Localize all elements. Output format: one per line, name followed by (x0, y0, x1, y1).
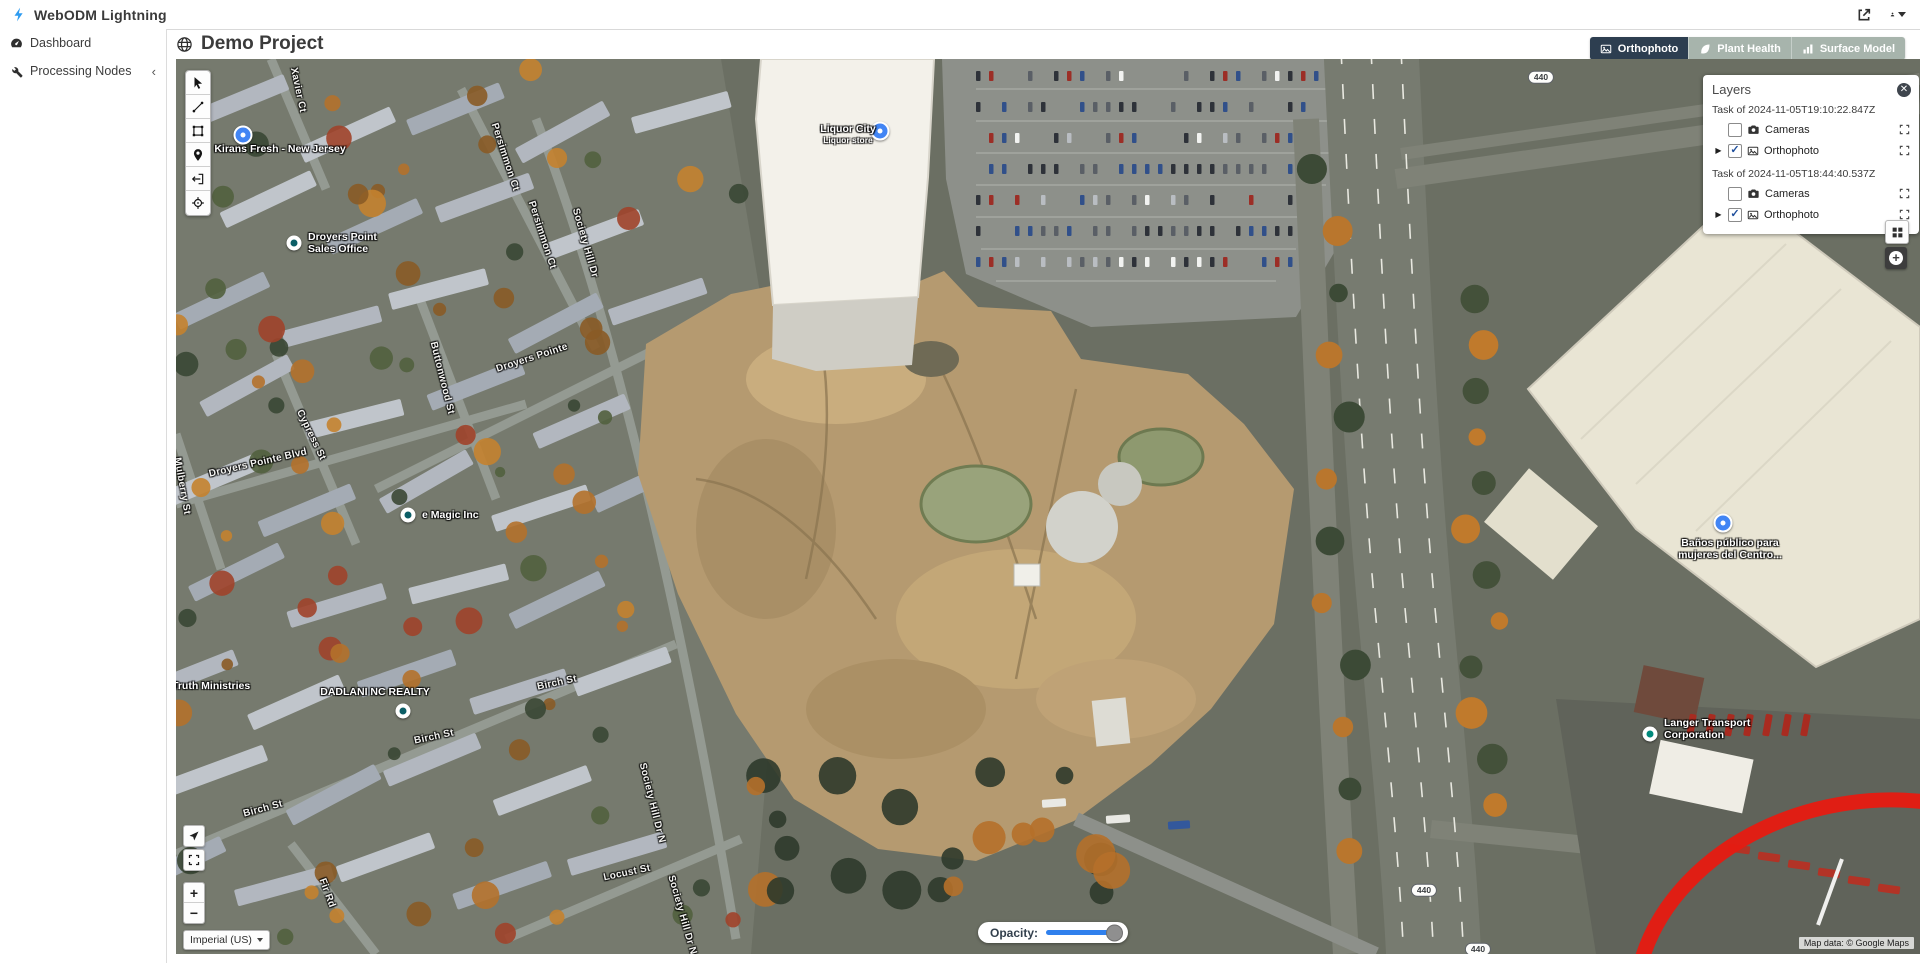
zoom-control: + − (183, 882, 205, 924)
opacity-label: Opacity: (990, 926, 1038, 940)
sidebar-item-label: Dashboard (30, 36, 91, 50)
zoom-in-button[interactable]: + (184, 883, 204, 903)
wrench-icon (10, 65, 23, 78)
top-navbar: WebODM Lightning (0, 0, 1920, 30)
tool-recenter-button[interactable] (186, 191, 210, 215)
export-icon (191, 172, 205, 186)
layers-panel-title: Layers (1712, 82, 1910, 97)
layer-row-orthophoto: ▶✓Orthophoto (1712, 140, 1910, 161)
truck-lot (1556, 699, 1920, 954)
brand-title: WebODM Lightning (34, 7, 167, 23)
user-menu[interactable] (1890, 7, 1906, 23)
mode-button-label: Orthophoto (1618, 43, 1678, 55)
camera-icon (1747, 123, 1760, 136)
units-value: Imperial (US) (190, 934, 252, 946)
circle-plus-icon: + (1889, 251, 1903, 265)
layer-checkbox[interactable]: ✓ (1728, 208, 1742, 222)
expand-caret-icon[interactable]: ▶ (1714, 146, 1723, 155)
tool-add-marker-button[interactable] (186, 143, 210, 167)
map-viewport[interactable]: Xavier CtPersimmon CtPersimmon CtSociety… (176, 59, 1920, 954)
collapse-chevron-icon[interactable]: ‹ (152, 64, 156, 79)
zoom-out-button[interactable]: − (184, 903, 204, 923)
layers-panel-body: Task of 2024-11-05T19:10:22.847ZCameras▶… (1712, 104, 1910, 225)
leaf-icon (1699, 43, 1711, 55)
layer-row-cameras: Cameras (1712, 183, 1910, 204)
zoom-to-layer-icon[interactable] (1899, 124, 1910, 135)
layer-group-heading: Task of 2024-11-05T18:44:40.537Z (1712, 168, 1910, 180)
silt-basin (921, 466, 1031, 542)
dashboard-icon (10, 37, 23, 50)
mode-button-group: OrthophotoPlant HealthSurface Model (1590, 37, 1905, 60)
lightning-bolt-icon (12, 6, 27, 23)
locate-button[interactable] (183, 825, 205, 847)
zoom-to-layer-icon[interactable] (1899, 188, 1910, 199)
layer-checkbox[interactable] (1728, 187, 1742, 201)
layers-panel: Layers ✕ Task of 2024-11-05T19:10:22.847… (1703, 75, 1919, 234)
opacity-slider-knob[interactable] (1106, 924, 1123, 941)
layer-group-heading: Task of 2024-11-05T19:10:22.847Z (1712, 104, 1910, 116)
tool-measure-area-button[interactable] (186, 119, 210, 143)
retail-building (756, 59, 934, 305)
camera-icon (1747, 187, 1760, 200)
page-header: Demo Project (176, 29, 323, 59)
layer-row-orthophoto: ▶✓Orthophoto (1712, 204, 1910, 225)
crosshair-icon (191, 196, 205, 210)
layer-label: Cameras (1765, 188, 1810, 200)
mode-button-orthophoto[interactable]: Orthophoto (1590, 37, 1688, 60)
expand-caret-icon[interactable]: ▶ (1714, 210, 1723, 219)
layer-row-cameras: Cameras (1712, 119, 1910, 140)
image-icon (1747, 145, 1759, 157)
layer-label: Orthophoto (1764, 145, 1819, 157)
page-title: Demo Project (201, 33, 323, 55)
line-icon (191, 100, 205, 114)
webodm-app: WebODM Lightning Dashboard Processing No… (0, 0, 1920, 963)
layers-toggle-button[interactable] (1885, 220, 1909, 244)
add-overlay-button[interactable]: + (1885, 247, 1907, 269)
layer-label: Orthophoto (1764, 209, 1819, 221)
sidebar-item-processing-nodes[interactable]: Processing Nodes ‹ (0, 57, 166, 85)
pin-icon (191, 148, 205, 162)
units-selector[interactable]: Imperial (US) (183, 930, 270, 950)
image-icon (1600, 43, 1612, 55)
tool-measure-line-button[interactable] (186, 95, 210, 119)
tool-export-button[interactable] (186, 167, 210, 191)
fullscreen-button[interactable] (183, 849, 205, 871)
chart-icon (1802, 43, 1814, 55)
chevron-down-icon (257, 938, 263, 942)
close-icon[interactable]: ✕ (1897, 83, 1911, 97)
image-icon (1747, 209, 1759, 221)
caret-down-icon (1898, 12, 1906, 17)
mode-button-label: Plant Health (1717, 43, 1781, 55)
layer-checkbox[interactable]: ✓ (1728, 144, 1742, 158)
sidebar-item-dashboard[interactable]: Dashboard (0, 29, 166, 57)
sidebar: Dashboard Processing Nodes ‹ (0, 29, 167, 963)
opacity-control: Opacity: (978, 922, 1128, 943)
brand-logo[interactable]: WebODM Lightning (12, 6, 167, 23)
zoom-to-layer-icon[interactable] (1899, 145, 1910, 156)
zoom-to-layer-icon[interactable] (1899, 209, 1910, 220)
navbar-right (1856, 7, 1906, 23)
polygon-icon (191, 124, 205, 138)
sidebar-item-label: Processing Nodes (30, 64, 131, 78)
map-draw-toolbar (185, 70, 211, 216)
external-link-icon[interactable] (1856, 7, 1872, 23)
map-attribution: Map data: © Google Maps (1799, 937, 1914, 949)
layer-label: Cameras (1765, 124, 1810, 136)
tool-select-button[interactable] (186, 71, 210, 95)
globe-icon (176, 36, 193, 53)
mode-button-surface-model[interactable]: Surface Model (1791, 37, 1905, 60)
cursor-icon (191, 76, 205, 90)
mode-button-label: Surface Model (1820, 43, 1895, 55)
satellite-map[interactable] (176, 59, 1920, 954)
opacity-slider[interactable] (1046, 930, 1116, 935)
layer-checkbox[interactable] (1728, 123, 1742, 137)
mode-button-plant-health[interactable]: Plant Health (1688, 37, 1791, 60)
